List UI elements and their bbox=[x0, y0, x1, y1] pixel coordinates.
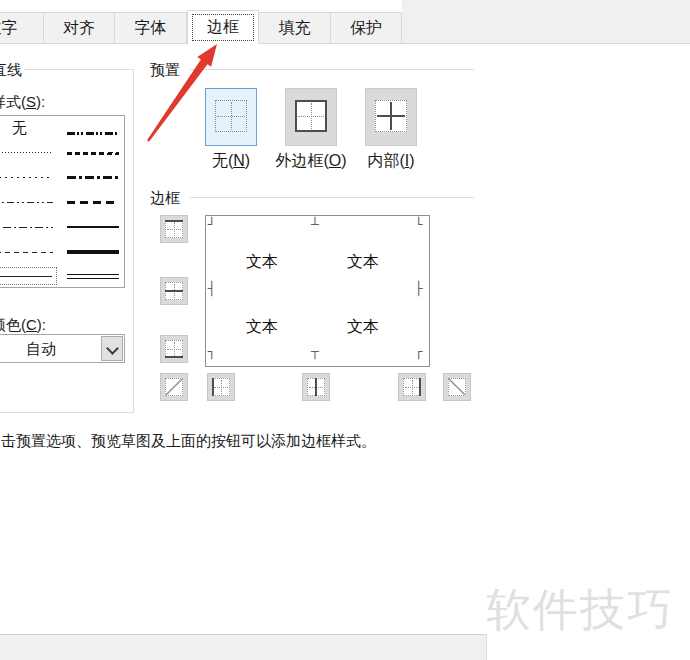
diagonal-down-border-icon bbox=[448, 378, 466, 396]
line-style-solid-thick-icon[interactable] bbox=[67, 250, 119, 254]
preview-mark-bottom-left: ┐ bbox=[208, 345, 216, 358]
line-group-top-border bbox=[24, 69, 133, 70]
line-group-right-border bbox=[133, 69, 134, 412]
preview-text: 文本 bbox=[333, 317, 393, 338]
border-group-top-border bbox=[190, 197, 474, 198]
border-hint-text: 击预置选项、预览草图及上面的按钮可以添加边框样式。 bbox=[1, 432, 376, 451]
line-style-dot-fine-icon[interactable] bbox=[0, 152, 53, 153]
tab-font[interactable]: 字体 bbox=[115, 12, 187, 43]
preset-none-button[interactable] bbox=[205, 88, 257, 146]
preview-mark-middle-left: ┤ bbox=[208, 282, 216, 295]
tab-alignment[interactable]: 对齐 bbox=[44, 12, 115, 43]
right-border-button[interactable] bbox=[398, 373, 426, 401]
top-border-icon bbox=[165, 220, 183, 238]
preview-mark-bottom-middle: ┬ bbox=[311, 345, 319, 358]
line-style-listbox[interactable]: 无 bbox=[0, 115, 125, 288]
line-style-double-icon[interactable] bbox=[67, 274, 119, 279]
right-border-icon bbox=[403, 378, 421, 396]
line-group-bottom-border bbox=[0, 412, 134, 413]
tab-fill[interactable]: 填充 bbox=[259, 12, 331, 43]
preset-inside-label: 内部(I) bbox=[346, 151, 436, 172]
preset-outline-label: 外边框(O) bbox=[266, 151, 356, 172]
border-group-title: 边框 bbox=[148, 189, 182, 208]
preview-mark-top-right: └ bbox=[415, 218, 423, 231]
presets-group-top-border bbox=[190, 69, 474, 70]
tab-number[interactable]: 数字 bbox=[0, 12, 44, 43]
line-style-slant-dash-dot-icon[interactable] bbox=[67, 152, 119, 155]
style-label: 样式(S): bbox=[0, 93, 45, 112]
line-style-dot-icon[interactable] bbox=[0, 177, 53, 178]
preview-mark-bottom-right: ┌ bbox=[415, 345, 423, 358]
border-outline-icon bbox=[295, 100, 327, 132]
middle-horizontal-border-icon bbox=[165, 282, 183, 300]
border-none-icon bbox=[215, 100, 247, 132]
tab-protection[interactable]: 保护 bbox=[331, 12, 402, 43]
tab-focus-rect bbox=[192, 14, 254, 41]
preview-text: 文本 bbox=[232, 317, 292, 338]
line-style-dash-dot-icon[interactable] bbox=[0, 227, 53, 228]
line-style-thin-solid-selected[interactable] bbox=[0, 267, 57, 285]
left-border-icon bbox=[212, 378, 230, 396]
diagonal-up-border-icon bbox=[165, 378, 183, 396]
top-border-button[interactable] bbox=[160, 215, 188, 243]
diagonal-up-border-button[interactable] bbox=[160, 373, 188, 401]
line-style-dash-icon[interactable] bbox=[0, 252, 53, 253]
watermark-text: 软件技巧 bbox=[486, 580, 674, 640]
middle-vertical-border-button[interactable] bbox=[302, 373, 330, 401]
middle-horizontal-border-button[interactable] bbox=[160, 277, 188, 305]
tab-border[interactable]: 边框 bbox=[187, 10, 259, 44]
format-cells-dialog: 数字 对齐 字体 边框 填充 保护 直线 样式(S): 无 颜色(C): bbox=[0, 0, 690, 660]
line-style-dash-dot-medium-icon[interactable] bbox=[67, 176, 119, 179]
bottom-border-button[interactable] bbox=[160, 335, 188, 363]
preview-text: 文本 bbox=[232, 252, 292, 273]
preset-none-label: 无(N) bbox=[186, 151, 276, 172]
line-style-dash-medium-icon[interactable] bbox=[67, 201, 119, 204]
diagonal-down-border-button[interactable] bbox=[443, 373, 471, 401]
color-dropdown-value: 自动 bbox=[0, 335, 101, 362]
presets-group-title: 预置 bbox=[148, 61, 182, 80]
middle-vertical-border-icon bbox=[307, 378, 325, 396]
tab-bar: 数字 对齐 字体 边框 填充 保护 bbox=[0, 12, 402, 44]
bottom-border-icon bbox=[165, 340, 183, 358]
line-style-solid-medium-icon[interactable] bbox=[67, 226, 119, 228]
border-inside-icon bbox=[375, 100, 407, 132]
preset-inside-button[interactable] bbox=[365, 88, 417, 146]
preview-mark-top-left: ┘ bbox=[208, 218, 216, 231]
color-dropdown[interactable]: 自动 bbox=[0, 334, 125, 363]
chevron-down-icon bbox=[106, 342, 119, 355]
color-dropdown-button[interactable] bbox=[101, 336, 123, 361]
line-group-title: 直线 bbox=[0, 61, 24, 80]
preset-outline-button[interactable] bbox=[285, 88, 337, 146]
line-style-none[interactable]: 无 bbox=[0, 119, 58, 138]
preview-mark-middle-right: ├ bbox=[415, 282, 423, 295]
line-style-dash-dot-dot-icon[interactable] bbox=[0, 202, 53, 203]
preview-text: 文本 bbox=[333, 252, 393, 273]
color-label: 颜色(C): bbox=[0, 316, 46, 335]
dialog-bottom-strip bbox=[0, 634, 487, 660]
left-border-button[interactable] bbox=[207, 373, 235, 401]
tab-strip-filler bbox=[402, 0, 690, 44]
preview-mark-top-middle: ┴ bbox=[311, 218, 319, 231]
line-style-dash-dot-dot-medium-icon[interactable] bbox=[67, 132, 119, 135]
